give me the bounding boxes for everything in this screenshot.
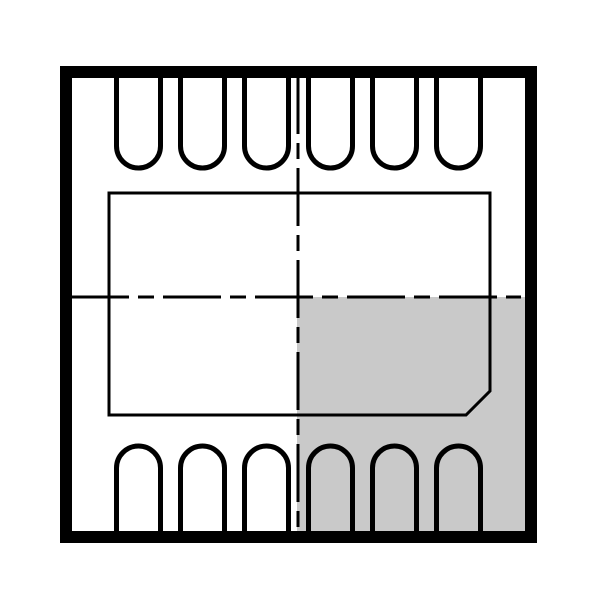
diagram-canvas [0,0,600,599]
package-outline-diagram [0,0,600,599]
